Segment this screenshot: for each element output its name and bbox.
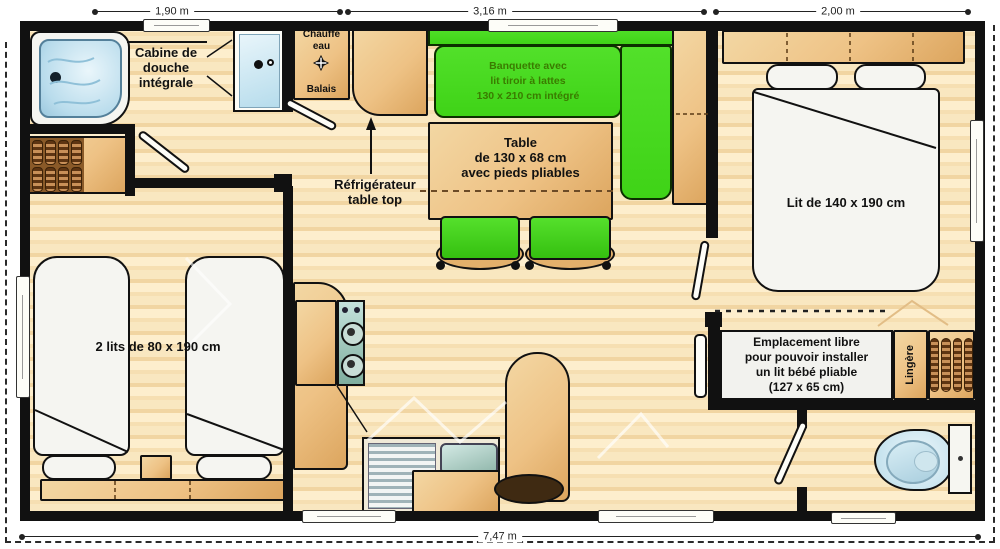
dimension-arrow xyxy=(965,9,971,15)
chauffe-eau-icon xyxy=(312,54,330,72)
window xyxy=(302,510,396,523)
stove-burner xyxy=(341,322,365,346)
armchair-seat xyxy=(494,474,564,504)
fridge-cabinet xyxy=(352,26,428,116)
wall-end-cap xyxy=(274,174,292,192)
hanger-rack xyxy=(30,138,84,192)
window xyxy=(16,276,30,398)
dimension-label-total: 7,47 m xyxy=(478,530,522,542)
linen-closet: Lingère xyxy=(893,330,928,400)
dimension-arrow xyxy=(92,9,98,15)
window xyxy=(831,512,896,524)
floor-strip-between-beds xyxy=(128,196,187,480)
dimension-arrow xyxy=(345,9,351,15)
hanger-icon xyxy=(32,167,43,192)
pillow xyxy=(854,64,926,90)
pillow xyxy=(766,64,838,90)
shower-label: Cabine de douche intégrale xyxy=(120,46,212,91)
stove xyxy=(337,300,365,386)
table-label: Table de 130 x 68 cm avec pieds pliables xyxy=(430,136,611,181)
dimension-arrow xyxy=(975,534,981,540)
shower-door-knob xyxy=(267,59,274,66)
hanger-icon xyxy=(32,140,43,165)
wall-segment xyxy=(20,124,135,134)
chair xyxy=(529,216,607,262)
overhead-cabinet xyxy=(722,30,965,64)
bench-seat: Banquette avec lit tiroir à lattes 130 x… xyxy=(434,45,622,118)
wardrobe-bathroom xyxy=(28,136,128,194)
hanger-icon xyxy=(71,140,82,165)
water-heater-closet: Chauffe eau Balais xyxy=(293,24,350,100)
baby-area-box: Emplacement libre pour pouvoir installer… xyxy=(720,330,893,400)
hanger-icon xyxy=(930,338,939,392)
pillow xyxy=(42,455,116,480)
toilet-tank xyxy=(948,424,972,494)
dimension-arrow xyxy=(19,534,25,540)
hanger-icon xyxy=(45,140,56,165)
shower-door-handle xyxy=(254,60,263,69)
water-heater-label: Chauffe eau xyxy=(295,29,348,52)
bathtub-drain xyxy=(50,72,61,83)
window xyxy=(488,19,618,32)
bench-label: Banquette avec lit tiroir à lattes 130 x… xyxy=(477,59,580,105)
wall-end-cap xyxy=(705,312,722,327)
dashed-border-left xyxy=(5,42,7,543)
window xyxy=(970,120,984,242)
twin-beds-label: 2 lits de 80 x 190 cm xyxy=(57,340,259,355)
baby-area-label: Emplacement libre pour pouvoir installer… xyxy=(722,335,891,395)
dimension-label-bedroom: 2,00 m xyxy=(816,5,860,17)
dashed-border-right xyxy=(993,25,995,543)
sliding-door-panel xyxy=(694,334,707,398)
dimension-line xyxy=(348,11,704,12)
twin-bed xyxy=(33,256,130,456)
floor-plan: Cabine de douche intégrale Chauffe eau B… xyxy=(0,0,1000,549)
toilet-water xyxy=(914,451,938,472)
dimension-line xyxy=(95,11,340,12)
hanger-icon xyxy=(953,338,962,392)
nightstand xyxy=(140,455,172,480)
wall-segment xyxy=(20,21,30,521)
bench-side-seat xyxy=(620,45,672,200)
dining-table: Table de 130 x 68 cm avec pieds pliables xyxy=(428,122,613,220)
entrance-door-opening xyxy=(598,510,714,523)
stove-pilot xyxy=(354,307,360,313)
fridge-label: Réfrigérateur table top xyxy=(310,178,440,208)
hanger-icon xyxy=(45,167,56,192)
hanger-closet xyxy=(928,330,975,400)
broom-label: Balais xyxy=(295,84,348,96)
pillow xyxy=(196,455,272,480)
linen-label: Lingère xyxy=(904,345,917,385)
dimension-arrow xyxy=(701,9,707,15)
dimension-label-bathroom: 1,90 m xyxy=(150,5,194,17)
hanger-icon xyxy=(964,338,973,392)
hanger-icon xyxy=(941,338,950,392)
chair xyxy=(440,216,516,262)
dimension-label-living: 3,16 m xyxy=(468,5,512,17)
hanger-icon xyxy=(58,167,69,192)
stove-burner xyxy=(341,354,365,378)
stove-pilot xyxy=(342,307,348,313)
wall-segment xyxy=(706,21,718,238)
bed-shelf xyxy=(40,479,285,501)
twin-bed xyxy=(185,256,285,456)
dimension-arrow xyxy=(337,9,343,15)
toilet-bowl xyxy=(874,429,954,491)
wall-segment xyxy=(797,487,807,517)
double-bed-label: Lit de 140 x 190 cm xyxy=(760,196,932,211)
wall-segment xyxy=(283,186,293,511)
wall-segment xyxy=(125,178,290,188)
double-bed xyxy=(752,88,940,292)
hanger-icon xyxy=(58,140,69,165)
dimension-arrow xyxy=(713,9,719,15)
wall-segment xyxy=(975,21,985,521)
sink-cabinet-front xyxy=(412,470,500,513)
window xyxy=(143,19,210,32)
kitchen-cabinet xyxy=(295,300,337,386)
hanger-icon xyxy=(71,167,82,192)
wall-segment xyxy=(708,400,985,410)
shower-cabin xyxy=(233,28,284,112)
